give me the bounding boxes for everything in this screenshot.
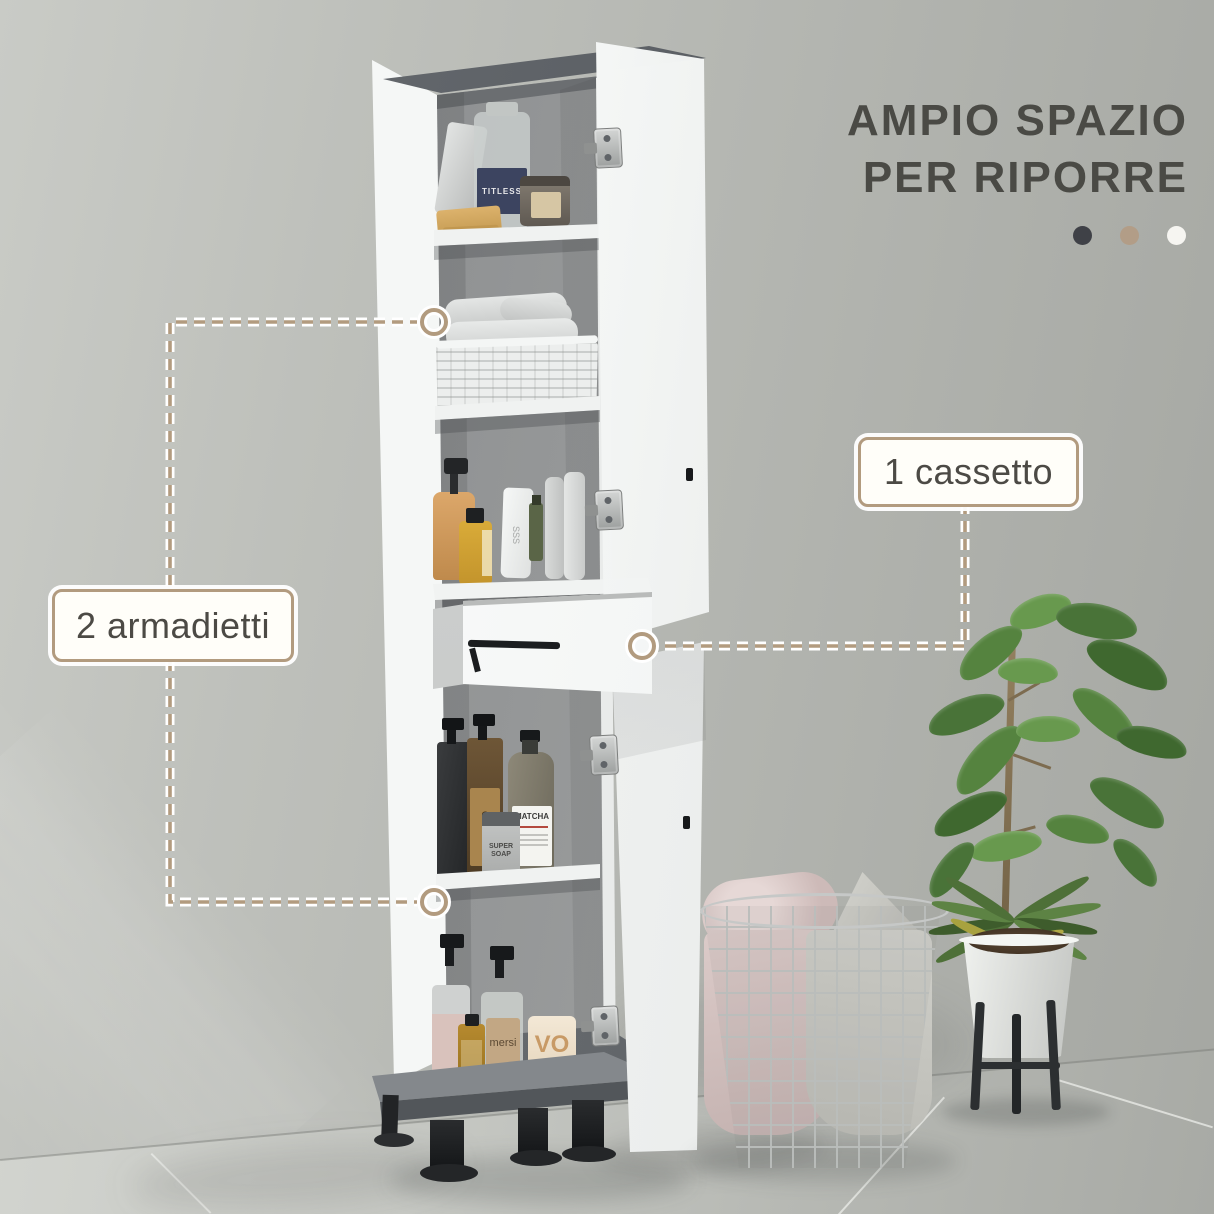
bottle-yellow-label <box>482 530 492 576</box>
candle-jar <box>520 176 570 226</box>
soap-jar-label: SUPER SOAP <box>483 836 519 866</box>
plant-pot <box>961 938 1077 1058</box>
bottle-amber-label <box>461 1040 482 1070</box>
vo-cup <box>528 1016 576 1086</box>
matcha-label: MATCHA <box>512 806 552 866</box>
glass-jar-neck <box>486 102 518 116</box>
plant-leaf <box>1108 831 1165 892</box>
headline-line-2: PER RIPORRE <box>847 149 1188 206</box>
cup-label-line <box>540 1064 566 1067</box>
cosmetic-tube-white <box>500 488 533 579</box>
plant-branch <box>1013 753 1052 769</box>
wicker-basket <box>436 342 598 408</box>
plant-leaf <box>1081 627 1176 700</box>
plant-fan-leaf <box>934 916 1017 967</box>
drawer-handle <box>468 640 560 649</box>
soap-jar <box>482 820 520 878</box>
basket-rim <box>700 893 949 929</box>
callout-line-cabinets-top <box>170 322 417 586</box>
plant-fan-leaf-dry <box>1015 927 1065 951</box>
drawer-handle-bracket <box>469 648 481 673</box>
pump-stem <box>447 726 456 744</box>
soap-jar-lid <box>482 812 520 826</box>
blanket-pink-roll <box>698 868 842 954</box>
plant-stem <box>999 640 1016 1012</box>
pump-stem <box>495 956 504 978</box>
plant-leaf <box>1066 678 1144 752</box>
plant-fan-leaf <box>1013 915 1098 938</box>
cup-label: VO <box>528 1028 576 1062</box>
plant-leaf <box>1114 719 1191 766</box>
callout-marker <box>630 634 654 658</box>
mersi-label-text: mersi <box>490 1037 517 1049</box>
spray-can <box>545 477 564 579</box>
matcha-label-lines <box>516 834 548 848</box>
bottle-green-cap <box>532 495 541 505</box>
pump-bottle-amber <box>433 492 475 580</box>
plant-leaf <box>1016 716 1080 742</box>
door-hinge <box>589 734 619 775</box>
product-scene: TITLESS SSS <box>0 0 1214 1214</box>
mersi-bottle <box>481 992 523 1078</box>
callout-cabinets: 2 armadietti <box>52 589 294 662</box>
bottle-yellow <box>459 521 492 585</box>
plant-leaf <box>927 782 1012 844</box>
plant-leaf <box>1005 587 1075 635</box>
folded-towel <box>446 318 579 351</box>
bottle-amber-cap <box>465 1014 479 1026</box>
plant-fan-leaf-dry <box>949 916 1002 947</box>
headline: AMPIO SPAZIO PER RIPORRE <box>847 92 1188 206</box>
pump-nozzle <box>440 934 464 948</box>
bottle-yellow-cap <box>466 508 484 523</box>
headline-line-1: AMPIO SPAZIO <box>847 92 1188 149</box>
door-hinge <box>593 127 623 168</box>
soap-jar-label-text: SUPER SOAP <box>483 843 519 860</box>
folded-towel <box>444 292 568 328</box>
pump-bottle-black <box>437 742 471 878</box>
jar-label-text: TITLESS <box>482 187 522 196</box>
plant-fan-leaf <box>943 873 1017 925</box>
swatch-dark-gray <box>1073 226 1092 245</box>
plant-leaf <box>997 656 1059 686</box>
plant-leaf <box>923 685 1009 742</box>
plant-leaf <box>1084 766 1172 838</box>
matcha-label-text: MATCHA <box>515 812 549 821</box>
blanket-gray-fold <box>800 872 930 972</box>
callout-marker <box>630 634 654 658</box>
capil-label: CAPIL <box>470 788 500 866</box>
callout-cabinets-label: 2 armadietti <box>76 605 270 647</box>
callout-drawer: 1 cassetto <box>858 437 1079 507</box>
pump-stem <box>478 722 487 740</box>
plant-leaf <box>968 826 1044 866</box>
plant-pot-rim <box>959 934 1079 946</box>
cosmetic-tube <box>434 121 488 218</box>
jar-label: TITLESS <box>477 168 527 214</box>
matcha-bottle-neck <box>522 740 538 754</box>
pump-stem <box>445 944 454 966</box>
wicker-basket-rim <box>436 335 598 349</box>
plant-leaf <box>1044 809 1112 850</box>
plant-leaf <box>1053 596 1140 646</box>
door-hinge <box>594 489 624 530</box>
pump-nozzle <box>442 718 464 730</box>
swatch-white <box>1167 226 1186 245</box>
plant-fan-leaf <box>1011 916 1089 964</box>
color-swatches <box>1073 226 1186 245</box>
pump-stem <box>450 470 458 494</box>
callout-marker <box>422 890 446 914</box>
door-knob <box>686 468 693 481</box>
callout-line-drawer <box>659 503 965 646</box>
plant-leaf <box>920 835 981 903</box>
candle-label <box>531 192 561 218</box>
spray-can <box>564 472 585 580</box>
bottle-green <box>529 503 543 561</box>
mersi-label: mersi <box>486 1018 520 1068</box>
matcha-label-lines <box>516 826 548 828</box>
pump-bottle-capil <box>467 738 503 876</box>
bottle-amber-small <box>458 1024 485 1088</box>
plant-fan-leaf <box>931 898 1015 926</box>
swatch-beige <box>1120 226 1139 245</box>
pump-nozzle <box>444 458 468 474</box>
pump-bottle-pink <box>432 985 470 1081</box>
callout-line-cabinets-top <box>170 322 417 586</box>
cup-label-text: VO <box>535 1031 570 1059</box>
plant-soil <box>968 928 1070 954</box>
tube-label-text: SSS <box>511 526 521 544</box>
callout-drawer-label: 1 cassetto <box>884 451 1053 493</box>
capil-label-text: CAPIL <box>480 811 490 842</box>
callout-marker <box>422 310 446 334</box>
soap-bar <box>436 205 502 236</box>
glass-jar <box>474 112 530 228</box>
door-knob <box>683 816 690 829</box>
callout-marker <box>422 310 446 334</box>
pump-nozzle <box>473 714 495 726</box>
plant-fan-leaf <box>1013 900 1102 926</box>
tube-label: SSS <box>508 505 524 565</box>
pump-nozzle <box>490 946 514 960</box>
matcha-bottle-cap <box>520 730 540 742</box>
plant-fan-leaf <box>1011 873 1091 926</box>
matcha-bottle <box>508 752 554 872</box>
plant-branch <box>1000 825 1036 837</box>
callout-line-drawer <box>659 503 965 646</box>
plant-leaf <box>945 716 1031 803</box>
plant-branch <box>1008 681 1041 702</box>
plant-fan-leaf <box>928 915 1015 938</box>
soap-bar <box>443 225 500 242</box>
folded-towel <box>499 296 573 327</box>
callout-marker <box>422 890 446 914</box>
plant-leaf <box>950 616 1030 688</box>
wall-shadow-behind-basket <box>610 985 970 1105</box>
